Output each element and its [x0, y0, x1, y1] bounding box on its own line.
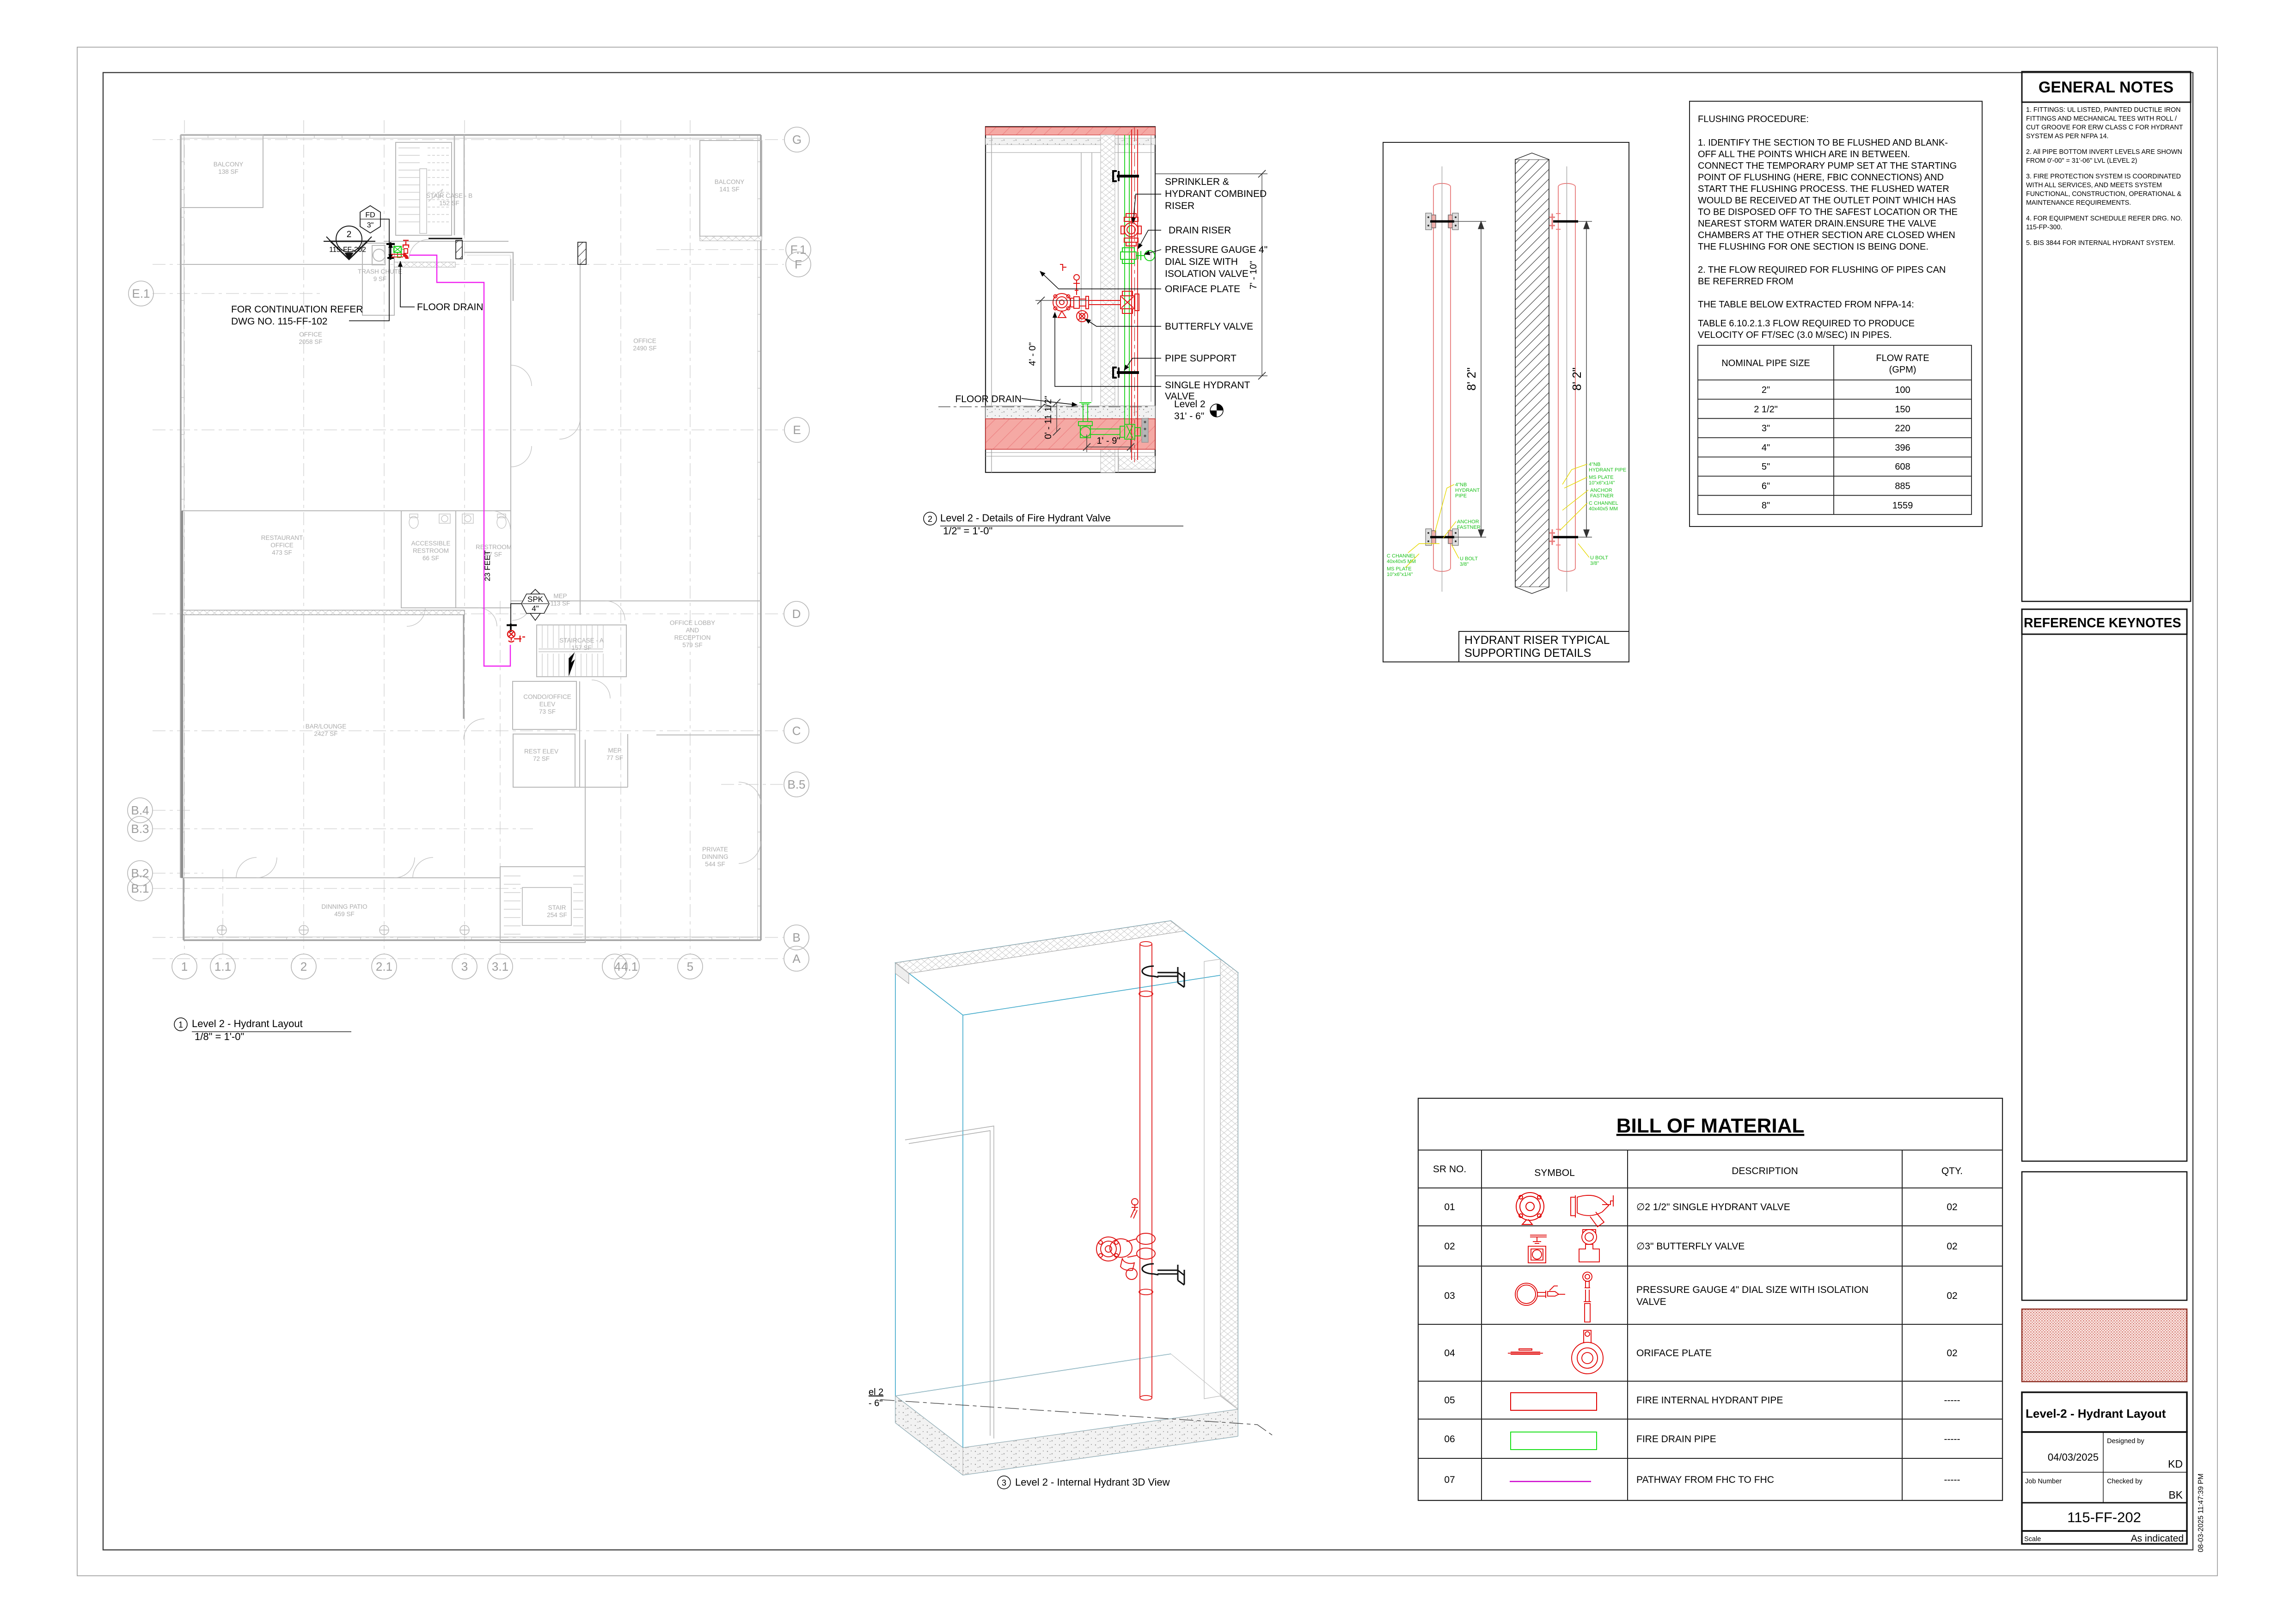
svg-text:2058 SF: 2058 SF [299, 338, 322, 345]
svg-text:4.1: 4.1 [621, 960, 638, 973]
svg-text:STAIRCASE - A: STAIRCASE - A [559, 637, 604, 644]
svg-text:3: 3 [1002, 1478, 1006, 1487]
svg-text:RESTAURANT: RESTAURANT [261, 534, 303, 541]
svg-text:04: 04 [1444, 1348, 1455, 1359]
svg-text:2: 2 [928, 514, 932, 524]
svg-text:∅3" BUTTERFLY VALVE: ∅3" BUTTERFLY VALVE [1636, 1241, 1745, 1252]
svg-text:THE FLUSHING FOR ONE SECTION I: THE FLUSHING FOR ONE SECTION IS BEING DO… [1698, 242, 1929, 252]
svg-text:152 SF: 152 SF [439, 200, 459, 207]
svg-text:396: 396 [1895, 443, 1910, 453]
svg-text:4": 4" [1762, 443, 1770, 453]
svg-text:2427 SF: 2427 SF [314, 730, 337, 737]
svg-text:31' - 6": 31' - 6" [1174, 411, 1204, 422]
svg-text:SINGLE HYDRANT: SINGLE HYDRANT [1165, 380, 1250, 391]
svg-text:OFFICE: OFFICE [270, 542, 294, 549]
svg-text:D: D [792, 607, 801, 621]
svg-text:8' 2": 8' 2" [1570, 367, 1584, 391]
svg-text:DESCRIPTION: DESCRIPTION [1732, 1166, 1798, 1176]
svg-text:MEP: MEP [608, 747, 621, 754]
svg-text:REFERENCE KEYNOTES: REFERENCE KEYNOTES [2024, 616, 2181, 630]
svg-text:C: C [792, 724, 801, 738]
svg-text:2490 SF: 2490 SF [633, 345, 656, 352]
svg-text:1/2" = 1'-0": 1/2" = 1'-0" [943, 525, 992, 537]
svg-text:ORIFACE PLATE: ORIFACE PLATE [1636, 1348, 1712, 1359]
svg-text:OFFICE: OFFICE [633, 337, 656, 344]
svg-text:- 6": - 6" [869, 1398, 882, 1408]
svg-text:BALCONY: BALCONY [214, 161, 244, 168]
svg-text:FIRE DRAIN PIPE: FIRE DRAIN PIPE [1636, 1434, 1716, 1444]
svg-text:MS PLATE: MS PLATE [1589, 475, 1614, 480]
svg-text:STAIR CASE - B: STAIR CASE - B [426, 192, 472, 199]
svg-text:115-FF-202: 115-FF-202 [2067, 1509, 2141, 1525]
svg-text:OFFICE: OFFICE [299, 331, 322, 338]
svg-text:77 SF: 77 SF [606, 754, 623, 761]
svg-text:2.1: 2.1 [376, 960, 392, 973]
svg-text:3/8": 3/8" [1460, 562, 1469, 567]
svg-text:Level 2: Level 2 [1174, 399, 1206, 410]
svg-text:CONDO/OFFICE: CONDO/OFFICE [523, 693, 571, 700]
svg-text:AND: AND [686, 627, 699, 634]
svg-text:4. FOR EQUIPMENT SCHEDULE REFE: 4. FOR EQUIPMENT SCHEDULE REFER DRG. NO. [2026, 215, 2182, 222]
svg-text:DINNING PATIO: DINNING PATIO [321, 903, 367, 910]
svg-text:MAINTENANCE REQUIREMENTS.: MAINTENANCE REQUIREMENTS. [2026, 199, 2131, 207]
svg-text:SPK: SPK [527, 595, 544, 604]
svg-text:BALCONY: BALCONY [715, 178, 745, 185]
svg-text:05: 05 [1444, 1395, 1455, 1406]
svg-text:∅2 1/2" SINGLE HYDRANT VALVE: ∅2 1/2" SINGLE HYDRANT VALVE [1636, 1202, 1790, 1212]
svg-text:TO BE DISPOSED OFF TO THE SAFE: TO BE DISPOSED OFF TO THE SAFEST LOCATIO… [1698, 207, 1958, 217]
svg-text:ORIFACE PLATE: ORIFACE PLATE [1165, 284, 1240, 294]
svg-text:el 2: el 2 [869, 1387, 883, 1397]
svg-text:2: 2 [347, 230, 352, 239]
svg-text:04/03/2025: 04/03/2025 [2048, 1451, 2099, 1463]
svg-text:MEP: MEP [553, 593, 567, 600]
svg-text:SPRINKLER &: SPRINKLER & [1165, 177, 1229, 187]
svg-text:40x40x5 MM: 40x40x5 MM [1589, 506, 1618, 512]
svg-text:4' - 0": 4' - 0" [1028, 343, 1038, 366]
svg-text:138 SF: 138 SF [218, 168, 239, 175]
svg-text:02: 02 [1947, 1291, 1957, 1301]
svg-text:ACCESSIBLE: ACCESSIBLE [411, 540, 451, 547]
svg-text:PRESSURE GAUGE 4" DIAL SIZE WI: PRESSURE GAUGE 4" DIAL SIZE WITH ISOLATI… [1636, 1285, 1868, 1295]
svg-text:FOR CONTINUATION REFER: FOR CONTINUATION REFER [231, 304, 363, 315]
svg-text:-----: ----- [1944, 1434, 1960, 1444]
svg-text:73 SF: 73 SF [539, 708, 556, 715]
svg-text:8' 2": 8' 2" [1464, 367, 1478, 391]
svg-text:ANCHOR: ANCHOR [1590, 488, 1612, 493]
svg-text:FASTNER: FASTNER [1590, 493, 1614, 499]
svg-text:TABLE 6.10.2.1.3 FLOW REQUIRED: TABLE 6.10.2.1.3 FLOW REQUIRED TO PRODUC… [1698, 318, 1915, 329]
svg-text:RECEPTION: RECEPTION [674, 634, 711, 641]
svg-text:CONNECT THE TEMPORARY PUMP SET: CONNECT THE TEMPORARY PUMP SET AT THE ST… [1698, 161, 1957, 171]
svg-text:SUPPORTING DETAILS: SUPPORTING DETAILS [1464, 647, 1591, 660]
svg-text:U BOLT: U BOLT [1460, 556, 1478, 562]
svg-text:4"NB: 4"NB [1455, 482, 1467, 488]
svg-text:115-FP-300.: 115-FP-300. [2026, 224, 2062, 231]
svg-text:72 SF: 72 SF [533, 755, 550, 762]
svg-text:F: F [795, 257, 802, 271]
svg-text:FIRE INTERNAL HYDRANT PIPE: FIRE INTERNAL HYDRANT PIPE [1636, 1395, 1783, 1406]
svg-text:DRAIN RISER: DRAIN RISER [1169, 225, 1231, 236]
svg-text:ELEV: ELEV [539, 701, 556, 708]
svg-text:HYDRANT: HYDRANT [1455, 488, 1480, 493]
svg-text:0' - 11 1/2": 0' - 11 1/2" [1043, 396, 1053, 439]
svg-text:(GPM): (GPM) [1889, 365, 1916, 375]
svg-text:BE REFERRED FROM: BE REFERRED FROM [1698, 276, 1794, 287]
svg-text:608: 608 [1895, 462, 1910, 472]
svg-text:START THE FLUSHING PROCESS. TH: START THE FLUSHING PROCESS. THE FLUSHED … [1698, 184, 1949, 194]
svg-text:02: 02 [1947, 1202, 1957, 1212]
svg-text:141 SF: 141 SF [719, 186, 740, 193]
svg-text:Job Number: Job Number [2025, 1478, 2062, 1485]
svg-text:RESTROOM: RESTROOM [413, 547, 449, 554]
svg-text:07: 07 [1444, 1475, 1455, 1485]
svg-text:NEAREST STORM WATER DRAIN.ENSU: NEAREST STORM WATER DRAIN.ENSURE THE VAL… [1698, 219, 1936, 229]
svg-text:3/8": 3/8" [1590, 561, 1599, 566]
svg-text:SYSTEM AS PER NFPA 14.: SYSTEM AS PER NFPA 14. [2026, 133, 2109, 140]
svg-text:BILL OF MATERIAL: BILL OF MATERIAL [1616, 1114, 1805, 1137]
svg-text:579 SF: 579 SF [682, 642, 703, 649]
svg-text:2. THE FLOW REQUIRED FOR FLUSH: 2. THE FLOW REQUIRED FOR FLUSHING OF PIP… [1698, 265, 1946, 275]
svg-text:FD: FD [365, 211, 375, 219]
svg-text:FASTNER: FASTNER [1457, 525, 1481, 530]
svg-text:PIPE SUPPORT: PIPE SUPPORT [1165, 353, 1237, 364]
svg-text:2. All PIPE BOTTOM INVERT LEVE: 2. All PIPE BOTTOM INVERT LEVELS ARE SHO… [2026, 148, 2182, 156]
svg-text:03: 03 [1444, 1291, 1455, 1301]
svg-text:100: 100 [1895, 385, 1910, 395]
svg-text:6": 6" [1762, 481, 1770, 491]
svg-text:B.5: B.5 [787, 777, 805, 791]
svg-text:U BOLT: U BOLT [1590, 555, 1608, 561]
svg-text:QTY.: QTY. [1941, 1166, 1963, 1176]
svg-text:4: 4 [614, 960, 621, 973]
svg-text:SYMBOL: SYMBOL [1534, 1168, 1575, 1178]
svg-text:FLUSHING PROCEDURE:: FLUSHING PROCEDURE: [1698, 114, 1809, 124]
svg-text:3. FIRE PROTECTION SYSTEM IS C: 3. FIRE PROTECTION SYSTEM IS COORDINATED [2026, 173, 2181, 180]
svg-text:RISER: RISER [1165, 201, 1194, 211]
svg-text:1559: 1559 [1892, 501, 1913, 511]
svg-text:RESTROOM: RESTROOM [476, 544, 512, 551]
svg-text:Designed by: Designed by [2107, 1438, 2144, 1445]
svg-text:OFFICE LOBBY: OFFICE LOBBY [670, 619, 715, 626]
svg-text:08-03-2025 11:47:39 PM: 08-03-2025 11:47:39 PM [2197, 1474, 2205, 1552]
svg-text:2: 2 [300, 960, 307, 973]
svg-text:STAIR: STAIR [548, 904, 566, 911]
svg-text:Checked by: Checked by [2107, 1478, 2143, 1485]
svg-text:WOULD BE RECEIVED AT THE OUTLE: WOULD BE RECEIVED AT THE OUTLET POINT WH… [1698, 196, 1956, 206]
svg-text:115-FF-202: 115-FF-202 [329, 246, 366, 254]
svg-text:G: G [792, 133, 802, 147]
svg-text:1.1: 1.1 [214, 960, 231, 973]
svg-text:3": 3" [367, 221, 374, 229]
svg-text:VALVE: VALVE [1636, 1297, 1666, 1307]
svg-text:FLOOR DRAIN: FLOOR DRAIN [417, 302, 484, 312]
svg-text:113 SF: 113 SF [551, 600, 570, 607]
svg-text:-----: ----- [1944, 1395, 1960, 1406]
svg-text:02: 02 [1947, 1348, 1957, 1359]
svg-text:A: A [792, 952, 801, 966]
svg-text:1/8" = 1'-0": 1/8" = 1'-0" [195, 1031, 244, 1042]
svg-text:WITH ALL SERVICES, AND MEETS S: WITH ALL SERVICES, AND MEETS SYSTEM [2026, 182, 2162, 189]
svg-text:As indicated: As indicated [2131, 1533, 2184, 1544]
svg-text:BK: BK [2168, 1489, 2183, 1501]
svg-text:E: E [793, 423, 801, 437]
svg-text:HYDRANT COMBINED: HYDRANT COMBINED [1165, 189, 1267, 199]
svg-text:5": 5" [1762, 462, 1770, 472]
svg-text:TRASH CHUTE: TRASH CHUTE [358, 268, 402, 275]
svg-text:HYDRANT PIPE: HYDRANT PIPE [1589, 467, 1626, 473]
svg-text:FITTINGS AND MECHANICAL TEES W: FITTINGS AND MECHANICAL TEES WITH ROLL / [2026, 115, 2177, 122]
svg-text:GENERAL NOTES: GENERAL NOTES [2039, 79, 2174, 96]
svg-text:B.3: B.3 [131, 822, 149, 836]
svg-text:KD: KD [2168, 1458, 2183, 1470]
svg-text:C CHANNEL: C CHANNEL [1387, 553, 1416, 559]
svg-text:FLOOR DRAIN: FLOOR DRAIN [955, 394, 1022, 404]
svg-text:B: B [792, 930, 800, 944]
svg-text:ANCHOR: ANCHOR [1457, 519, 1479, 525]
svg-text:B.2: B.2 [131, 866, 149, 880]
svg-text:PRESSURE GAUGE 4": PRESSURE GAUGE 4" [1165, 245, 1267, 255]
svg-text:Level 2 - Hydrant Layout: Level 2 - Hydrant Layout [192, 1018, 303, 1029]
svg-text:VELOCITY OF FT/SEC (3.0 M/SEC): VELOCITY OF FT/SEC (3.0 M/SEC) IN PIPES. [1698, 330, 1892, 340]
svg-text:-----: ----- [1944, 1475, 1960, 1485]
svg-text:885: 885 [1895, 481, 1910, 491]
svg-text:10"x6"x1/4": 10"x6"x1/4" [1387, 572, 1413, 577]
svg-text:HYDRANT RISER TYPICAL: HYDRANT RISER TYPICAL [1464, 634, 1610, 647]
svg-text:B.1: B.1 [131, 881, 149, 895]
svg-text:2": 2" [1762, 385, 1770, 395]
svg-text:150: 150 [1895, 404, 1910, 415]
svg-text:4"NB: 4"NB [1589, 462, 1600, 467]
svg-text:C CHANNEL: C CHANNEL [1589, 501, 1618, 506]
svg-text:DIAL SIZE WITH: DIAL SIZE WITH [1165, 257, 1238, 267]
svg-text:02: 02 [1444, 1241, 1455, 1252]
svg-text:01: 01 [1444, 1202, 1455, 1212]
svg-text:BAR/LOUNGE: BAR/LOUNGE [306, 723, 347, 730]
svg-text:PATHWAY FROM FHC TO FHC: PATHWAY FROM FHC TO FHC [1636, 1475, 1774, 1485]
svg-text:8": 8" [1762, 501, 1770, 511]
svg-text:254 SF: 254 SF [547, 912, 567, 918]
svg-text:SR NO.: SR NO. [1433, 1164, 1466, 1175]
svg-text:PIPE: PIPE [1455, 493, 1467, 499]
svg-text:66 SF: 66 SF [422, 555, 439, 562]
svg-text:1' - 9": 1' - 9" [1097, 436, 1120, 446]
svg-text:3.1: 3.1 [492, 960, 508, 973]
svg-text:10"x6"x1/4": 10"x6"x1/4" [1589, 480, 1615, 486]
svg-text:220: 220 [1895, 423, 1910, 434]
svg-text:CHAMBERS AT THE OTHER SECTION: CHAMBERS AT THE OTHER SECTION ARE CLOSED… [1698, 230, 1955, 240]
svg-text:4": 4" [532, 604, 539, 613]
svg-text:1. FITTINGS: UL LISTED, PAINTE: 1. FITTINGS: UL LISTED, PAINTED DUCTILE … [2026, 106, 2180, 114]
svg-text:FLOW RATE: FLOW RATE [1876, 353, 1929, 363]
svg-text:REST ELEV: REST ELEV [524, 748, 558, 755]
svg-text:459 SF: 459 SF [334, 911, 355, 918]
svg-text:B.4: B.4 [131, 803, 149, 817]
svg-text:E.1: E.1 [132, 287, 150, 300]
svg-text:473 SF: 473 SF [272, 549, 292, 556]
svg-text:FUNCTIONAL, CONSTRUCTION, OPER: FUNCTIONAL, CONSTRUCTION, OPERATIONAL & [2026, 190, 2181, 198]
svg-text:23 FEET: 23 FEET [483, 550, 492, 581]
svg-text:2 1/2": 2 1/2" [1754, 404, 1778, 415]
svg-text:THE TABLE BELOW EXTRACTED FROM: THE TABLE BELOW EXTRACTED FROM NFPA-14: [1698, 300, 1914, 310]
svg-text:1: 1 [181, 960, 188, 973]
svg-text:06: 06 [1444, 1434, 1455, 1444]
svg-text:Level 2 - Internal Hydrant 3D: Level 2 - Internal Hydrant 3D View [1015, 1476, 1170, 1488]
svg-text:DWG NO. 115-FF-102: DWG NO. 115-FF-102 [231, 316, 327, 327]
svg-text:157 SF: 157 SF [571, 644, 592, 651]
svg-text:5. BIS 3844 FOR INTERNAL HYDR: 5. BIS 3844 FOR INTERNAL HYDRANT SYSTEM. [2026, 239, 2175, 247]
svg-text:POINT OF FLUSHING (HERE, FBIC: POINT OF FLUSHING (HERE, FBIC CONNECTION… [1698, 172, 1944, 183]
svg-text:PRIVATE: PRIVATE [702, 846, 728, 853]
svg-text:1. IDENTIFY THE SECTION TO BE: 1. IDENTIFY THE SECTION TO BE FLUSHED AN… [1698, 138, 1948, 148]
svg-text:3: 3 [461, 960, 468, 973]
svg-text:ISOLATION VALVE: ISOLATION VALVE [1165, 269, 1249, 279]
svg-text:CUT GROOVE FOR ERW CLASS C FOR: CUT GROOVE FOR ERW CLASS C FOR HYDRANT [2026, 124, 2183, 131]
svg-text:FROM 0'-00" = 31'-06" LVL (LEV: FROM 0'-00" = 31'-06" LVL (LEVEL 2) [2026, 157, 2137, 165]
svg-text:Level 2 - Details of Fire Hydr: Level 2 - Details of Fire Hydrant Valve [940, 512, 1111, 524]
svg-text:Level-2 - Hydrant Layout: Level-2 - Hydrant Layout [2026, 1407, 2166, 1420]
svg-text:3": 3" [1762, 423, 1770, 434]
svg-text:544 SF: 544 SF [705, 861, 725, 868]
svg-text:F.1: F.1 [790, 243, 807, 257]
svg-text:9 SF: 9 SF [373, 275, 387, 282]
svg-text:5: 5 [687, 960, 693, 973]
svg-text:OFF ALL THE POINTS WHICH ARE I: OFF ALL THE POINTS WHICH ARE IN BETWEEN. [1698, 149, 1910, 159]
svg-text:7' - 10": 7' - 10" [1249, 261, 1259, 289]
svg-text:1: 1 [178, 1020, 183, 1029]
svg-text:BUTTERFLY VALVE: BUTTERFLY VALVE [1165, 321, 1253, 332]
svg-text:02: 02 [1947, 1241, 1957, 1252]
svg-text:MS PLATE: MS PLATE [1387, 566, 1412, 572]
svg-text:NOMINAL PIPE SIZE: NOMINAL PIPE SIZE [1721, 358, 1810, 368]
svg-text:DINNING: DINNING [702, 853, 729, 860]
svg-text:Scale: Scale [2024, 1536, 2041, 1543]
